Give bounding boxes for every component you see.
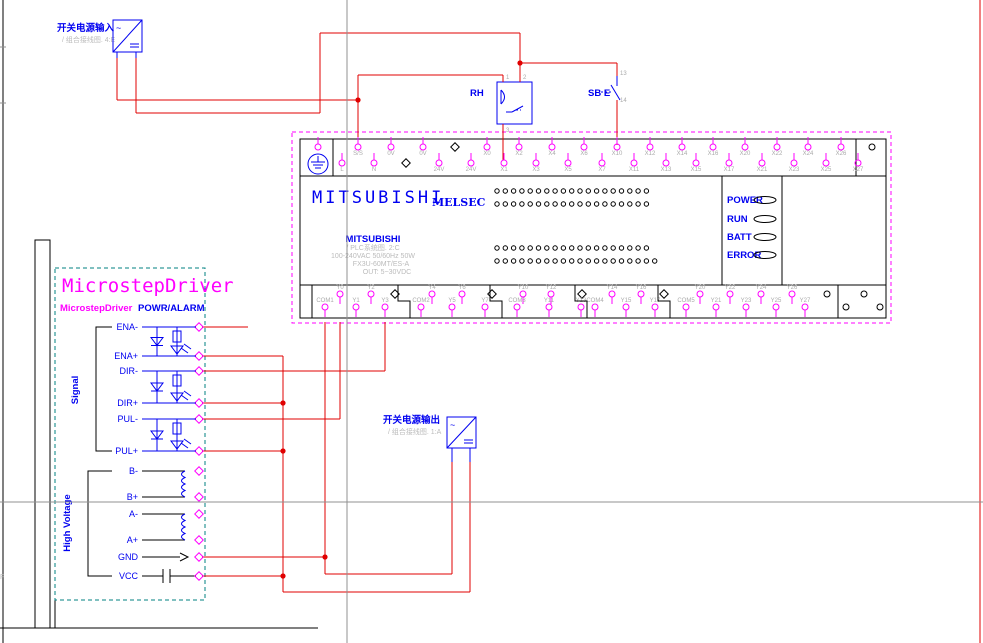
driver-terminal-label: GND bbox=[118, 552, 139, 562]
terminal-label: Y1 bbox=[352, 298, 360, 304]
wire-duct[interactable] bbox=[35, 240, 50, 628]
plc-block[interactable]: MITSUBISHI MELSEC MITSUBISHI / PLC系统图. 2… bbox=[292, 132, 891, 323]
plc-terminal[interactable] bbox=[623, 304, 629, 310]
driver-terminal-b+[interactable] bbox=[195, 493, 203, 501]
schematic-drawing[interactable]: F 开关电源输入 / 组合接线图. 4:E ~ RH 1 2 3 SB E 13… bbox=[0, 0, 983, 643]
driver-terminal-label: ENA- bbox=[116, 322, 138, 332]
driver-terminal-b-[interactable] bbox=[195, 467, 203, 475]
io-led-dot bbox=[495, 202, 499, 206]
io-led-dot bbox=[561, 259, 565, 263]
io-led-dot bbox=[628, 246, 632, 250]
status-led-label: POWER bbox=[727, 195, 763, 206]
driver-terminal-label: B- bbox=[129, 466, 138, 476]
io-led-dot bbox=[570, 259, 574, 263]
io-led-dot bbox=[528, 246, 532, 250]
plc-terminal[interactable] bbox=[652, 304, 658, 310]
io-led-dot bbox=[644, 259, 648, 263]
plc-terminal[interactable] bbox=[339, 160, 345, 166]
terminal-label: Y22 bbox=[725, 285, 736, 291]
plc-terminal[interactable] bbox=[388, 144, 394, 150]
io-led-dot bbox=[503, 246, 507, 250]
plc-model-name: MITSUBISHI bbox=[346, 234, 401, 245]
hv-group-label: High Voltage bbox=[62, 494, 73, 551]
power-output-ref: / 组合接线图. 1:A bbox=[388, 427, 442, 436]
plc-terminal[interactable] bbox=[484, 144, 490, 150]
plc-terminal[interactable] bbox=[353, 304, 359, 310]
plc-terminal[interactable] bbox=[726, 160, 732, 166]
plc-terminal[interactable] bbox=[382, 304, 388, 310]
wire-junction-dot bbox=[517, 60, 522, 65]
driver-terminal-pul+[interactable] bbox=[195, 447, 203, 455]
driver-terminal-label: PUL- bbox=[117, 414, 138, 424]
plc-terminal[interactable] bbox=[514, 304, 520, 310]
terminal-label: Y5 bbox=[448, 298, 456, 304]
plc-terminal[interactable] bbox=[743, 304, 749, 310]
relay-pin3: 3 bbox=[506, 128, 510, 134]
unused-terminal-circle[interactable] bbox=[877, 304, 883, 310]
relay-pin1: 1 bbox=[506, 75, 510, 81]
io-led-dot bbox=[619, 246, 623, 250]
io-led-dot bbox=[578, 246, 582, 250]
relay-label: RH bbox=[470, 88, 484, 99]
switch-label: SB E bbox=[588, 88, 610, 99]
plc-terminal[interactable] bbox=[420, 144, 426, 150]
unused-terminal-circle[interactable] bbox=[843, 304, 849, 310]
plc-terminal[interactable] bbox=[315, 144, 321, 150]
plc-terminal[interactable] bbox=[546, 304, 552, 310]
plc-terminal[interactable] bbox=[609, 291, 615, 297]
driver-terminal-gnd[interactable] bbox=[195, 553, 203, 561]
terminal-label: X24 bbox=[803, 151, 814, 157]
terminal-label: X0 bbox=[483, 151, 491, 157]
terminal-label: L bbox=[340, 167, 344, 173]
io-led-dot bbox=[561, 202, 565, 206]
io-led-dot bbox=[644, 189, 648, 193]
io-led-dot bbox=[495, 189, 499, 193]
unused-terminal-circle[interactable] bbox=[861, 291, 867, 297]
wire-layer[interactable] bbox=[117, 0, 980, 643]
io-led-dot bbox=[603, 189, 607, 193]
terminal-label: X3 bbox=[532, 167, 540, 173]
io-led-dot bbox=[536, 246, 540, 250]
io-led-dot bbox=[603, 202, 607, 206]
io-led-dot bbox=[495, 259, 499, 263]
io-led-dot bbox=[611, 246, 615, 250]
switch-sb[interactable]: SB E 13 14 bbox=[588, 71, 627, 104]
terminal-label: Y12 bbox=[546, 285, 557, 291]
status-led-label: RUN bbox=[727, 214, 748, 225]
led-emission-arrow bbox=[184, 391, 191, 396]
plc-terminal[interactable] bbox=[805, 144, 811, 150]
strip-step-divider bbox=[398, 285, 410, 318]
cad-canvas[interactable]: F 开关电源输入 / 组合接线图. 4:E ~ RH 1 2 3 SB E 13… bbox=[0, 0, 983, 643]
led-emission-arrow bbox=[181, 395, 188, 400]
plc-terminal[interactable] bbox=[468, 160, 474, 166]
unused-terminal-circle[interactable] bbox=[824, 291, 830, 297]
plc-terminal[interactable] bbox=[791, 160, 797, 166]
plc-terminal[interactable] bbox=[501, 160, 507, 166]
io-led-dot bbox=[619, 259, 623, 263]
io-led-dot bbox=[570, 189, 574, 193]
plc-terminal[interactable] bbox=[758, 291, 764, 297]
io-led-dot bbox=[628, 189, 632, 193]
terminal-label: X16 bbox=[708, 151, 719, 157]
terminal-label: X20 bbox=[740, 151, 751, 157]
io-led-dot bbox=[644, 202, 648, 206]
plc-terminal[interactable] bbox=[647, 144, 653, 150]
io-led-dot bbox=[636, 189, 640, 193]
status-led bbox=[754, 216, 776, 223]
io-led-dot bbox=[561, 246, 565, 250]
relay-pin2: 2 bbox=[523, 75, 527, 81]
terminal-label: X14 bbox=[677, 151, 688, 157]
terminal-label: X10 bbox=[612, 151, 623, 157]
led-emission-arrow bbox=[184, 344, 191, 349]
io-led-dot bbox=[561, 189, 565, 193]
plc-terminal[interactable] bbox=[710, 144, 716, 150]
io-led-dot bbox=[545, 189, 549, 193]
io-led-dot bbox=[636, 246, 640, 250]
plc-terminal[interactable] bbox=[581, 144, 587, 150]
driver-terminal-label: B+ bbox=[127, 492, 138, 502]
io-led-dot bbox=[511, 189, 515, 193]
signal-bracket bbox=[96, 327, 112, 451]
terminal-label: 0V bbox=[387, 151, 394, 157]
io-led-dot bbox=[545, 202, 549, 206]
io-led-dot bbox=[495, 246, 499, 250]
plc-terminal[interactable] bbox=[683, 304, 689, 310]
io-led-dot bbox=[586, 259, 590, 263]
plc-model-type: FX3U-60MT/ES-A bbox=[353, 261, 410, 268]
plc-terminal[interactable] bbox=[838, 144, 844, 150]
power-output-label: 开关电源输出 bbox=[383, 414, 440, 426]
plc-terminal[interactable] bbox=[693, 160, 699, 166]
terminal-label: X13 bbox=[661, 167, 672, 173]
io-led-dot bbox=[603, 246, 607, 250]
driver-border bbox=[55, 268, 205, 600]
led-emission-arrow bbox=[181, 443, 188, 448]
io-led-dot bbox=[578, 202, 582, 206]
relay-contact-blade bbox=[512, 106, 523, 112]
io-led-dot bbox=[520, 189, 524, 193]
plc-terminal[interactable] bbox=[549, 144, 555, 150]
io-led-dot bbox=[628, 259, 632, 263]
plc-terminal[interactable] bbox=[548, 291, 554, 297]
power-input-ref: / 组合接线图. 4:E bbox=[62, 35, 116, 44]
ac-tilde: ~ bbox=[450, 420, 455, 430]
plc-terminal[interactable] bbox=[697, 291, 703, 297]
terminal-label: COM1 bbox=[316, 298, 334, 304]
plc-terminal[interactable] bbox=[802, 304, 808, 310]
terminal-label: Y2 bbox=[367, 285, 375, 291]
unconnected-pin-diamond[interactable] bbox=[402, 159, 410, 167]
io-led-dot bbox=[503, 189, 507, 193]
terminal-label: Y21 bbox=[711, 298, 722, 304]
io-led-dot bbox=[536, 202, 540, 206]
io-led-dot bbox=[553, 259, 557, 263]
terminal-label: COM3 bbox=[508, 298, 526, 304]
io-led-dot bbox=[536, 259, 540, 263]
io-led-dot bbox=[578, 259, 582, 263]
io-led-dot bbox=[586, 246, 590, 250]
plc-terminal[interactable] bbox=[742, 144, 748, 150]
plc-model-ref: / PLC系统图. 2:C bbox=[346, 243, 399, 252]
io-led-dot bbox=[520, 259, 524, 263]
wire-junction-dot bbox=[280, 448, 285, 453]
driver-terminal-label: A+ bbox=[127, 535, 138, 545]
wire-junction-dot bbox=[355, 97, 360, 102]
terminal-label: Y7 bbox=[481, 298, 489, 304]
io-led-dot bbox=[586, 202, 590, 206]
io-led-dot bbox=[553, 202, 557, 206]
terminal-label: COM2 bbox=[412, 298, 430, 304]
io-led-dot bbox=[553, 246, 557, 250]
terminal-label: X15 bbox=[691, 167, 702, 173]
driver-terminal-ena+[interactable] bbox=[195, 352, 203, 360]
plc-terminal[interactable] bbox=[823, 160, 829, 166]
terminal-label: X4 bbox=[548, 151, 556, 157]
led-emission-arrow bbox=[181, 348, 188, 353]
io-led-dot bbox=[636, 202, 640, 206]
io-led-dot bbox=[520, 246, 524, 250]
switch-pin14: 14 bbox=[620, 98, 627, 104]
switch-pin13: 13 bbox=[620, 71, 627, 77]
led-layer: POWERRUNBATTERROR bbox=[727, 195, 776, 261]
plc-model-power: 100-240VAC 50/60Hz 50W bbox=[331, 253, 415, 260]
switch-blade bbox=[611, 85, 620, 100]
driver-terminal-label: DIR- bbox=[120, 366, 139, 376]
io-led-dot bbox=[594, 246, 598, 250]
terminal-label: 0V bbox=[419, 151, 426, 157]
driver-terminal-label: DIR+ bbox=[117, 398, 138, 408]
driver-terminal-label: PUL+ bbox=[115, 446, 138, 456]
io-led-dot bbox=[594, 202, 598, 206]
microstep-driver-block[interactable]: MicrostepDriver MicrostepDriver POWR/ALA… bbox=[55, 268, 234, 600]
plc-terminal[interactable] bbox=[631, 160, 637, 166]
driver-circuit-layer[interactable]: ENA-ENA+DIR-DIR+PUL-PUL+B-B+A-A+GNDVCC bbox=[114, 322, 203, 581]
io-led-dot bbox=[611, 202, 615, 206]
plc-terminal[interactable] bbox=[371, 160, 377, 166]
plc-terminal[interactable] bbox=[429, 291, 435, 297]
unconnected-pin-diamond[interactable] bbox=[488, 290, 496, 298]
led-emission-arrow bbox=[184, 439, 191, 444]
hv-bracket bbox=[88, 471, 112, 576]
terminal-label: Y11 bbox=[544, 298, 555, 304]
io-led-dot bbox=[611, 259, 615, 263]
unused-terminal-circle[interactable] bbox=[869, 144, 875, 150]
terminal-label: S/S bbox=[353, 151, 363, 157]
driver-terminal-pul-[interactable] bbox=[195, 415, 203, 423]
terminal-label: Y14 bbox=[607, 285, 618, 291]
terminal-label: X17 bbox=[724, 167, 735, 173]
driver-terminal-label: ENA+ bbox=[114, 351, 138, 361]
io-led-dot bbox=[594, 259, 598, 263]
driver-title: MicrostepDriver bbox=[62, 275, 234, 297]
plc-terminal[interactable] bbox=[713, 304, 719, 310]
driver-terminal-label: VCC bbox=[119, 571, 139, 581]
status-led-label: ERROR bbox=[727, 250, 761, 261]
io-led-dot bbox=[528, 259, 532, 263]
io-led-dot bbox=[528, 202, 532, 206]
plc-terminal[interactable] bbox=[789, 291, 795, 297]
plc-terminal[interactable] bbox=[578, 304, 584, 310]
plc-terminal[interactable] bbox=[337, 291, 343, 297]
io-led-dot bbox=[603, 259, 607, 263]
terminal-label: 24V bbox=[466, 167, 477, 173]
wire-junction-dot bbox=[322, 554, 327, 559]
io-led-dot bbox=[511, 259, 515, 263]
driver-terminal-dir-[interactable] bbox=[195, 367, 203, 375]
io-led-dot bbox=[570, 202, 574, 206]
vcc-capacitor bbox=[142, 569, 196, 583]
driver-powr-alarm: POWR/ALARM bbox=[138, 303, 205, 314]
plc-terminal[interactable] bbox=[774, 144, 780, 150]
status-led bbox=[754, 234, 776, 241]
terminal-label: 24V bbox=[434, 167, 445, 173]
io-led-dot bbox=[545, 246, 549, 250]
plc-terminal[interactable] bbox=[482, 304, 488, 310]
ac-tilde: ~ bbox=[116, 23, 121, 33]
terminal-label: Y10 bbox=[518, 285, 529, 291]
terminal-label: Y6 bbox=[458, 285, 466, 291]
terminal-label: X23 bbox=[789, 167, 800, 173]
io-led-dot bbox=[611, 189, 615, 193]
terminal-label: X1 bbox=[500, 167, 508, 173]
unconnected-pin-diamond[interactable] bbox=[578, 290, 586, 298]
terminal-label: X22 bbox=[772, 151, 783, 157]
terminal-label: Y15 bbox=[621, 298, 632, 304]
gnd-arrow bbox=[142, 553, 188, 561]
plc-terminal[interactable] bbox=[599, 160, 605, 166]
io-led-dot bbox=[644, 246, 648, 250]
io-led-dot bbox=[636, 259, 640, 263]
plc-terminal[interactable] bbox=[727, 291, 733, 297]
io-led-dot bbox=[586, 189, 590, 193]
plc-terminal[interactable] bbox=[663, 160, 669, 166]
plc-terminal[interactable] bbox=[322, 304, 328, 310]
power-input-symbol[interactable]: 开关电源输入 / 组合接线图. 4:E ~ bbox=[57, 20, 142, 58]
io-led-dot bbox=[628, 202, 632, 206]
terminal-label: X2 bbox=[515, 151, 523, 157]
terminal-label: Y27 bbox=[800, 298, 811, 304]
terminal-label: X21 bbox=[757, 167, 768, 173]
io-led-dot bbox=[511, 246, 515, 250]
io-led-dot bbox=[653, 259, 657, 263]
terminal-label: N bbox=[372, 167, 376, 173]
plc-terminal[interactable] bbox=[773, 304, 779, 310]
plc-terminal[interactable] bbox=[565, 160, 571, 166]
io-led-dot bbox=[536, 189, 540, 193]
driver-terminal-label: A- bbox=[129, 509, 138, 519]
frame-zone-letter: F bbox=[0, 574, 4, 581]
plc-body[interactable] bbox=[300, 139, 886, 318]
driver-terminal-a-[interactable] bbox=[195, 510, 203, 518]
terminal-label: X12 bbox=[645, 151, 656, 157]
terminal-layer[interactable]: S/S0V0VX0X2X4X6X10X12X14X16X20X22X24X26L… bbox=[315, 137, 883, 318]
plc-terminal[interactable] bbox=[449, 304, 455, 310]
plc-terminal[interactable] bbox=[638, 291, 644, 297]
plc-terminal[interactable] bbox=[679, 144, 685, 150]
io-led-dot bbox=[503, 202, 507, 206]
wire-junction-dot bbox=[280, 573, 285, 578]
io-led-dot bbox=[511, 202, 515, 206]
relay-rh[interactable]: RH 1 2 3 bbox=[470, 75, 532, 134]
terminal-label: Y23 bbox=[741, 298, 752, 304]
relay-coil-arc bbox=[501, 90, 505, 104]
plc-terminal[interactable] bbox=[592, 304, 598, 310]
terminal-label: X27 bbox=[853, 167, 864, 173]
io-led-dot bbox=[578, 189, 582, 193]
driver-terminal-vcc[interactable] bbox=[195, 572, 203, 580]
wire-junction-dot bbox=[280, 400, 285, 405]
terminal-label: Y24 bbox=[756, 285, 767, 291]
inductor-coil bbox=[182, 514, 186, 540]
unconnected-pin-diamond[interactable] bbox=[451, 143, 459, 151]
plc-terminal[interactable] bbox=[436, 160, 442, 166]
plc-series: MELSEC bbox=[432, 196, 486, 209]
io-led-dot bbox=[520, 202, 524, 206]
io-led-dot bbox=[619, 189, 623, 193]
plc-terminal[interactable] bbox=[418, 304, 424, 310]
terminal-label: X5 bbox=[564, 167, 572, 173]
power-input-label: 开关电源输入 bbox=[57, 22, 115, 34]
power-output-symbol[interactable]: 开关电源输出 / 组合接线图. 1:A ~ bbox=[383, 414, 476, 462]
terminal-label: COM4 bbox=[586, 298, 604, 304]
terminal-label: Y0 bbox=[336, 285, 344, 291]
io-led-dot bbox=[594, 189, 598, 193]
terminal-label: Y20 bbox=[695, 285, 706, 291]
terminal-label: Y25 bbox=[771, 298, 782, 304]
terminal-label: Y16 bbox=[636, 285, 647, 291]
terminal-label: X26 bbox=[836, 151, 847, 157]
terminal-label: Y26 bbox=[787, 285, 798, 291]
plc-terminal[interactable] bbox=[368, 291, 374, 297]
plc-terminal[interactable] bbox=[759, 160, 765, 166]
io-led-dot bbox=[619, 202, 623, 206]
terminal-label: COM5 bbox=[677, 298, 695, 304]
signal-group-label: Signal bbox=[70, 376, 81, 405]
driver-terminal-a+[interactable] bbox=[195, 536, 203, 544]
unconnected-pin-diamond[interactable] bbox=[660, 290, 668, 298]
plc-model-out: OUT: 5~30VDC bbox=[363, 269, 411, 276]
terminal-label: Y3 bbox=[381, 298, 389, 304]
inductor-coil bbox=[182, 471, 186, 497]
io-led-dot bbox=[528, 189, 532, 193]
plc-brand: MITSUBISHI bbox=[312, 188, 444, 208]
terminal-label: X6 bbox=[580, 151, 588, 157]
io-led-dot bbox=[553, 189, 557, 193]
plc-selection-border bbox=[292, 132, 891, 323]
terminal-label: X25 bbox=[821, 167, 832, 173]
plc-terminal[interactable] bbox=[355, 144, 361, 150]
terminal-label: Y4 bbox=[428, 285, 436, 291]
terminal-label: X11 bbox=[629, 167, 640, 173]
terminal-label: X7 bbox=[598, 167, 606, 173]
io-led-dot bbox=[545, 259, 549, 263]
plc-terminal[interactable] bbox=[520, 291, 526, 297]
ground-symbol bbox=[308, 154, 328, 174]
driver-terminal-dir+[interactable] bbox=[195, 399, 203, 407]
driver-terminal-ena-[interactable] bbox=[195, 323, 203, 331]
plc-terminal[interactable] bbox=[459, 291, 465, 297]
io-led-dot bbox=[503, 259, 507, 263]
status-led-label: BATT bbox=[727, 232, 752, 243]
plc-terminal[interactable] bbox=[533, 160, 539, 166]
driver-subtitle: MicrostepDriver bbox=[60, 303, 133, 314]
plc-terminal[interactable] bbox=[516, 144, 522, 150]
io-led-dot bbox=[570, 246, 574, 250]
